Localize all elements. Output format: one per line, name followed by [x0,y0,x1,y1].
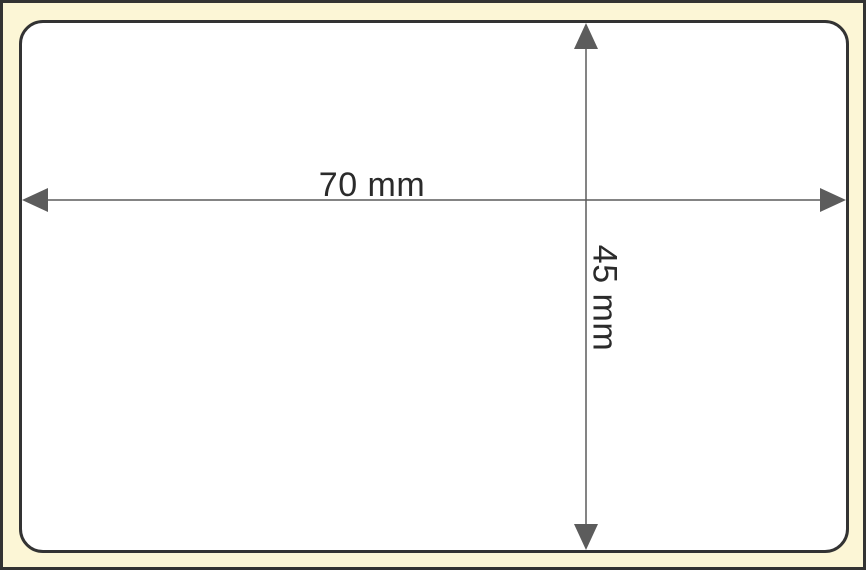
height-arrowhead-bottom-icon [574,524,598,550]
height-dimension-label: 45 mm [584,245,625,351]
height-arrowhead-top-icon [574,23,598,49]
width-arrowhead-left-icon [22,188,48,212]
dimension-overlay [22,23,846,550]
label-outline: 70 mm 45 mm [19,20,849,553]
width-arrowhead-right-icon [820,188,846,212]
width-dimension-label: 70 mm [319,165,425,206]
diagram-canvas: 70 mm 45 mm [0,0,866,570]
